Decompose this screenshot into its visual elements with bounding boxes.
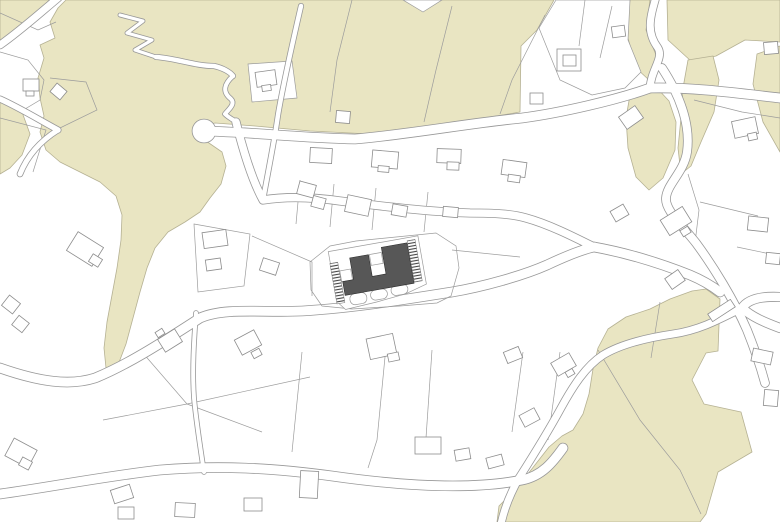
building-footprint xyxy=(299,471,318,499)
building-footprint xyxy=(563,55,576,66)
building-footprint xyxy=(747,216,768,232)
building-footprint xyxy=(387,352,399,362)
building-footprint xyxy=(447,162,459,170)
building-footprint xyxy=(437,149,461,164)
turning-circle xyxy=(193,120,216,143)
building-footprint xyxy=(530,93,543,104)
building-footprint xyxy=(262,84,272,91)
building-footprint xyxy=(765,252,780,264)
building-footprint xyxy=(764,41,779,54)
building-footprint xyxy=(118,507,134,519)
building-footprint xyxy=(443,206,459,217)
courtyard-cell-outline xyxy=(340,269,353,282)
building-footprint xyxy=(244,498,262,511)
building-footprint xyxy=(747,132,757,141)
building-footprint xyxy=(26,91,34,96)
building-footprint xyxy=(611,25,625,38)
building-footprint xyxy=(454,448,471,461)
building-footprint xyxy=(378,166,389,173)
building-footprint xyxy=(508,174,521,183)
building-footprint xyxy=(175,502,196,517)
site-plan-map xyxy=(0,0,780,522)
courtyard-cell-outline xyxy=(369,252,383,265)
building-footprint xyxy=(763,389,778,406)
building-footprint xyxy=(415,437,441,454)
building-footprint xyxy=(202,229,228,248)
building-footprint xyxy=(205,258,221,271)
building-footprint xyxy=(391,204,408,217)
building-footprint xyxy=(336,110,351,123)
building-footprint xyxy=(23,79,39,91)
building-footprint xyxy=(310,147,333,163)
site-plan-canvas xyxy=(0,0,780,522)
